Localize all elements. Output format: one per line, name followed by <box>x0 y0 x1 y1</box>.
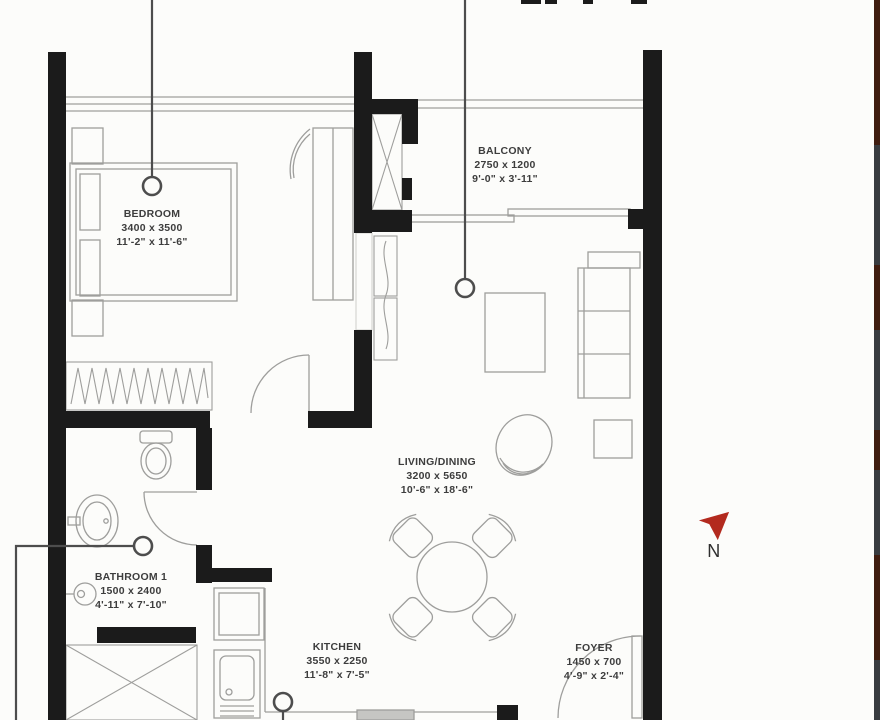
north-label: N <box>707 541 721 562</box>
kitchen-counter <box>265 588 497 720</box>
room-size-ft: 11'-2" x 11'-6" <box>116 236 187 250</box>
room-size-mm: 3400 x 3500 <box>121 222 182 236</box>
dining-chair <box>385 593 437 645</box>
kitchen-sink <box>214 650 260 718</box>
balcony-railing <box>416 100 643 108</box>
top-cut-mark <box>583 0 593 4</box>
room-label-balcony: BALCONY 2750 x 1200 9'-0" x 3'-11" <box>472 145 538 186</box>
room-size-ft: 4'-11" x 7'-10" <box>95 599 167 613</box>
wall-shaft-stub <box>402 99 418 144</box>
north-arrow-icon <box>695 509 733 543</box>
coffee-table <box>485 293 545 372</box>
dining-table-set <box>385 510 520 645</box>
room-name: BEDROOM <box>124 208 181 222</box>
room-label-kitchen: KITCHEN 3550 x 2250 11'-8" x 7'-5" <box>304 641 370 682</box>
top-cut-mark <box>631 0 647 4</box>
room-size-mm: 1500 x 2400 <box>100 585 161 599</box>
room-size-ft: 10'-6" x 18'-6" <box>401 484 473 498</box>
room-name: BATHROOM 1 <box>95 571 167 585</box>
wall-right-outer <box>643 50 662 720</box>
dining-chair <box>385 510 437 562</box>
wall-kitchen-foyer-stub <box>497 705 518 720</box>
balcony-sliding-door <box>410 209 630 222</box>
bedroom-wardrobe <box>290 128 353 300</box>
room-size-mm: 3550 x 2250 <box>306 655 367 669</box>
room-label-bathroom-1: BATHROOM 1 1500 x 2400 4'-11" x 7'-10" <box>95 571 167 612</box>
bathroom-door <box>144 492 197 545</box>
room-name: LIVING/DINING <box>398 456 476 470</box>
wall-shaft-stub-mid <box>402 178 412 200</box>
room-label-living-dining: LIVING/DINING 3200 x 5650 10'-6" x 18'-6… <box>398 456 476 497</box>
leader-marker-living <box>456 279 474 297</box>
lounge-chair <box>486 405 563 485</box>
north-indicator: N <box>692 509 736 562</box>
leader-marker-kitchen <box>274 693 292 711</box>
dining-chair <box>468 510 520 562</box>
shower-icon <box>66 583 96 605</box>
washbasin <box>68 495 118 547</box>
room-name: BALCONY <box>478 145 532 159</box>
room-size-ft: 9'-0" x 3'-11" <box>472 173 538 187</box>
room-size-ft: 11'-8" x 7'-5" <box>304 669 370 683</box>
wall-bedroom-bottom-left <box>48 411 210 428</box>
room-label-foyer: FOYER 1450 x 700 4'-9" x 2'-4" <box>564 642 624 683</box>
floor-plan-canvas: BEDROOM 3400 x 3500 11'-2" x 11'-6" BALC… <box>0 0 880 720</box>
wall-shaft-bottom <box>354 210 412 232</box>
room-name: FOYER <box>575 642 612 656</box>
sofa <box>578 252 640 398</box>
shower-area <box>66 645 197 720</box>
wall-bedroom-divider-top <box>354 52 372 233</box>
duct-shaft <box>372 114 402 210</box>
wall-left-outer <box>48 52 66 720</box>
wall-bathroom-bottom <box>97 627 196 643</box>
wardrobe-hanger-rail <box>66 362 212 410</box>
room-size-mm: 2750 x 1200 <box>474 159 535 173</box>
room-size-mm: 3200 x 5650 <box>406 470 467 484</box>
wall-balcony-end-block <box>628 209 643 229</box>
dining-chair <box>468 593 520 645</box>
wall-bedroom-bottom-right <box>308 411 372 428</box>
wall-kitchen-top <box>196 568 272 582</box>
photo-edge-strip <box>874 0 880 720</box>
room-label-bedroom: BEDROOM 3400 x 3500 11'-2" x 11'-6" <box>116 208 187 249</box>
top-cut-mark <box>545 0 557 4</box>
leader-marker-bathroom <box>134 537 152 555</box>
room-name: KITCHEN <box>313 641 361 655</box>
side-table <box>594 420 632 458</box>
top-cut-mark <box>521 0 541 4</box>
wall-bathroom-right-upper <box>196 428 212 490</box>
room-size-mm: 1450 x 700 <box>566 656 621 670</box>
toilet <box>140 431 172 479</box>
refrigerator <box>214 588 264 640</box>
bedroom-window <box>66 97 354 111</box>
leader-marker-bedroom <box>143 177 161 195</box>
bedroom-door <box>251 355 309 413</box>
room-size-ft: 4'-9" x 2'-4" <box>564 670 624 684</box>
